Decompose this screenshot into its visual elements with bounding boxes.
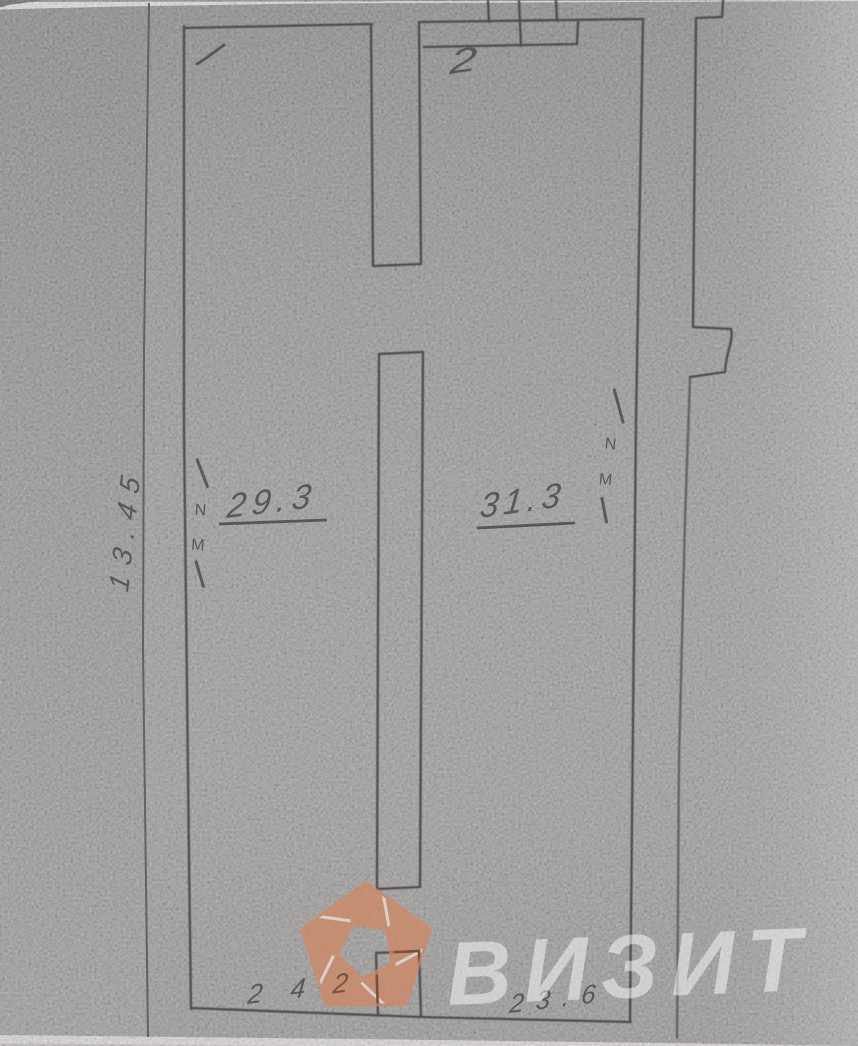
svg-text:N: N — [604, 435, 617, 453]
svg-text:N: N — [194, 502, 207, 520]
svg-text:M: M — [191, 536, 205, 554]
svg-text:M: M — [598, 471, 613, 489]
svg-text:2: 2 — [447, 39, 478, 82]
svg-text:ВИЗИТ: ВИЗИТ — [445, 910, 816, 1025]
